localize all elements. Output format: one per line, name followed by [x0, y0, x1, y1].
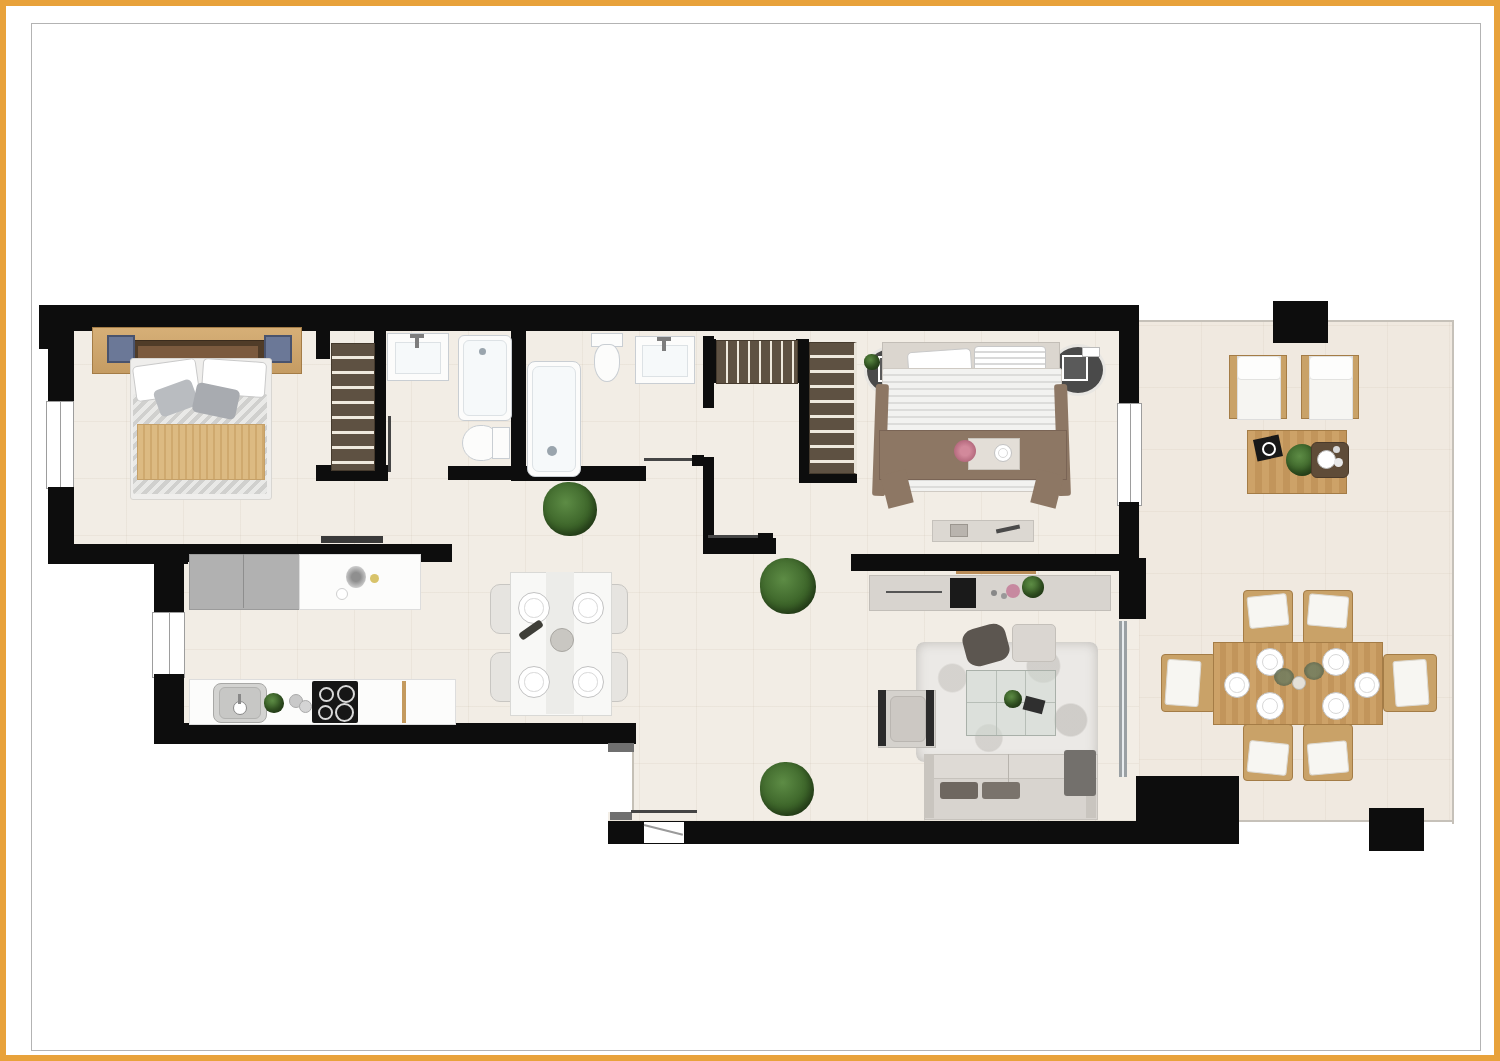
- sliding-door-terrace-glass: [1122, 621, 1124, 777]
- sofa-arm: [924, 754, 934, 818]
- terrace-pillar: [1369, 808, 1424, 851]
- plant-living: [760, 762, 814, 816]
- entry-floor-edge: [632, 752, 634, 812]
- coffee-maker: [346, 566, 366, 588]
- plant-sideboard: [1022, 576, 1044, 598]
- wardrobe-master-bedroom: [331, 343, 375, 471]
- place-setting: [518, 592, 550, 624]
- burner: [318, 705, 333, 720]
- bathtub-drain: [479, 348, 486, 355]
- burner: [319, 687, 334, 702]
- exterior-wall-bedroom2-right: [1119, 331, 1139, 405]
- book-circle: [1262, 442, 1276, 456]
- plant-living: [760, 558, 816, 614]
- armchair-arm: [878, 690, 886, 746]
- sofa-blanket: [1064, 750, 1096, 796]
- place-setting: [518, 666, 550, 698]
- chair-cushion: [1246, 740, 1289, 776]
- interior-wall: [374, 331, 386, 481]
- armchair-arm: [926, 690, 934, 746]
- chair-cushion: [1392, 659, 1429, 707]
- interior-wall: [316, 331, 330, 359]
- cup: [1334, 458, 1343, 467]
- sliding-door-bedroom1: [321, 536, 383, 543]
- door-stop: [758, 533, 773, 551]
- interior-wall: [799, 351, 809, 481]
- plant-kitchen: [264, 693, 284, 713]
- centerpiece-vase: [550, 628, 574, 652]
- nightstand-item: [1082, 347, 1100, 357]
- faucet-icon: [415, 338, 419, 348]
- table-center-dish: [1292, 676, 1306, 690]
- entry-step: [608, 743, 634, 752]
- window-master-bedroom: [46, 401, 74, 489]
- chair-cushion: [1307, 593, 1350, 628]
- kettle: [1317, 450, 1336, 469]
- plant-small: [864, 354, 880, 370]
- cabinet-divider: [243, 554, 244, 608]
- door-leaf-bathroom1: [388, 416, 391, 472]
- place-setting: [1256, 692, 1284, 720]
- chair-cushion: [1164, 659, 1201, 707]
- toilet-tank: [492, 427, 510, 459]
- door-stop: [692, 455, 704, 466]
- place-setting: [1322, 692, 1350, 720]
- exterior-wall-kitchen-left: [154, 564, 184, 614]
- kitchen-tall-cabinets: [189, 554, 301, 610]
- cup: [1333, 446, 1340, 453]
- counter-item: [370, 574, 379, 583]
- exterior-wall-bedroom2-right: [1119, 502, 1139, 558]
- door-swing-bedroom2: [708, 535, 760, 538]
- flowers: [954, 440, 976, 462]
- sofa-divider: [1008, 754, 1009, 782]
- nightstand-decor: [1062, 355, 1088, 381]
- armchair-cushion: [890, 696, 926, 742]
- interior-wall-bath-divider: [511, 331, 526, 481]
- terrace-boundary: [1452, 320, 1454, 824]
- shaker: [299, 700, 312, 713]
- exterior-wall-bottom: [608, 821, 1138, 844]
- sofa-cushion: [940, 782, 978, 799]
- table-bouquet: [1304, 662, 1324, 680]
- breakfast-plate: [994, 444, 1012, 462]
- decor-dots: [991, 590, 997, 596]
- wardrobe-bedroom2: [809, 342, 857, 474]
- exterior-cutout: [608, 752, 634, 812]
- page: [0, 0, 1500, 1061]
- faucet-icon: [662, 341, 666, 351]
- lounge-bolster: [1309, 356, 1353, 380]
- interior-wall-closet-left: [706, 339, 716, 383]
- plant-hallway: [543, 482, 597, 536]
- place-setting: [1224, 672, 1250, 698]
- counter-item: [336, 588, 348, 600]
- chair-cushion: [1307, 740, 1350, 775]
- shower-inner: [532, 366, 576, 472]
- counter-wood-board: [402, 681, 406, 723]
- entry-step: [610, 812, 632, 820]
- burner: [337, 685, 355, 703]
- exterior-cutout: [34, 564, 154, 856]
- window-kitchen: [152, 612, 185, 678]
- place-setting: [1354, 672, 1380, 698]
- tv-sideboard: [869, 575, 1111, 611]
- interior-wall-bedroom2-bottom: [851, 554, 1139, 571]
- burner: [335, 703, 354, 722]
- exterior-wall-kitchen-bottom: [154, 723, 636, 744]
- hallway-closet: [716, 340, 798, 384]
- entrance-door-leaf: [631, 810, 697, 813]
- shower-drain: [547, 446, 557, 456]
- terrace-pillar: [1273, 301, 1328, 343]
- pouf: [1012, 624, 1056, 662]
- place-setting: [572, 592, 604, 624]
- sofa-cushion: [982, 782, 1020, 799]
- toilet: [594, 344, 620, 382]
- place-setting: [1322, 648, 1350, 676]
- sink-faucet-spout: [238, 694, 241, 704]
- lounge-bolster: [1237, 356, 1281, 380]
- place-setting: [572, 666, 604, 698]
- sideboard-wood-item: [956, 571, 1036, 574]
- exterior-cutout: [154, 744, 608, 864]
- flowers-pink: [1006, 584, 1020, 598]
- tv: [950, 578, 976, 608]
- table-bouquet: [1274, 668, 1294, 686]
- terrace-floor: [1139, 322, 1452, 822]
- interior-wall-corridor: [448, 466, 526, 480]
- floor-plan: [6, 6, 1500, 1061]
- bench-item: [950, 524, 968, 537]
- exterior-wall-bottom-right: [1136, 776, 1239, 844]
- window-bedroom2: [1117, 403, 1142, 506]
- exterior-wall-left: [48, 331, 74, 403]
- plant-coffee-table: [1004, 690, 1022, 708]
- chair-cushion: [1246, 593, 1289, 629]
- sideboard-handle: [886, 591, 942, 593]
- bed-blanket: [137, 424, 265, 480]
- bench: [932, 520, 1034, 542]
